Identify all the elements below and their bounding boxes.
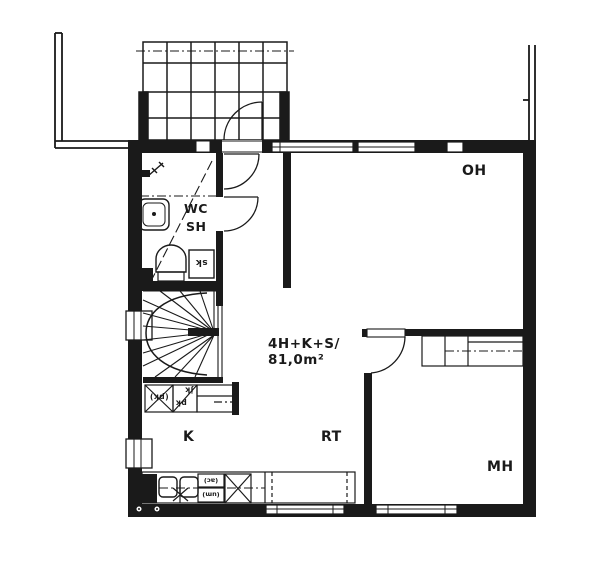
room-label-rt: RT (321, 430, 342, 444)
porch-post-right (280, 92, 289, 140)
kitchen-label-um: (um) (198, 491, 224, 498)
wc-sink (139, 199, 169, 230)
closet-label-sk: sk (191, 257, 212, 266)
room-label-k: K (183, 430, 194, 444)
left-wall-window-kitchen (126, 439, 152, 468)
bottom-wall-window-rt (266, 505, 344, 514)
staircase (143, 291, 222, 377)
floor-plan: OH WC SH sk (pk) pk jk 4H+K+S/ 81,0m² K … (0, 0, 600, 576)
top-wall-window-2 (358, 142, 415, 152)
top-wall-sidelight-window (196, 141, 210, 152)
hall-closet (197, 385, 237, 412)
kitchen-counter (142, 472, 355, 503)
room-label-oh: OH (462, 164, 487, 178)
wc-toilet (141, 245, 186, 282)
mh-closet (422, 336, 523, 366)
left-yard-fence (55, 33, 128, 148)
left-wall-window-stairs (126, 311, 152, 340)
top-wall-vent (447, 142, 463, 152)
appliance-label-pk: pk (172, 399, 190, 407)
wc-tap-symbol (141, 162, 164, 177)
wc-door-swing (224, 197, 258, 231)
front-door-swing (224, 154, 259, 189)
top-wall-window-1 (272, 142, 353, 152)
apartment-type-label: 4H+K+S/ (268, 338, 340, 352)
right-yard-fence (523, 45, 535, 140)
entrance-porch-grid (136, 42, 294, 140)
kitchen-label-ac: (ac) (198, 477, 224, 484)
stair-center-newel (188, 328, 219, 336)
mh-door-swing (367, 329, 405, 373)
porch-door-swing (224, 102, 262, 140)
kitchen-sink (159, 477, 198, 503)
floor-plan-drawing (0, 0, 600, 576)
apartment-area-label: 81,0m² (268, 354, 324, 368)
room-label-wc: WC (184, 203, 208, 216)
front-door-opening (222, 140, 262, 153)
bottom-wall-window-mh (376, 505, 457, 514)
room-label-mh: MH (487, 460, 514, 474)
appliance-label-pk-reserved: (pk) (145, 393, 173, 401)
porch-post-left (139, 92, 148, 140)
wc-door-opening (215, 197, 224, 231)
appliance-label-jk: jk (181, 386, 197, 394)
room-label-sh: SH (186, 221, 206, 234)
